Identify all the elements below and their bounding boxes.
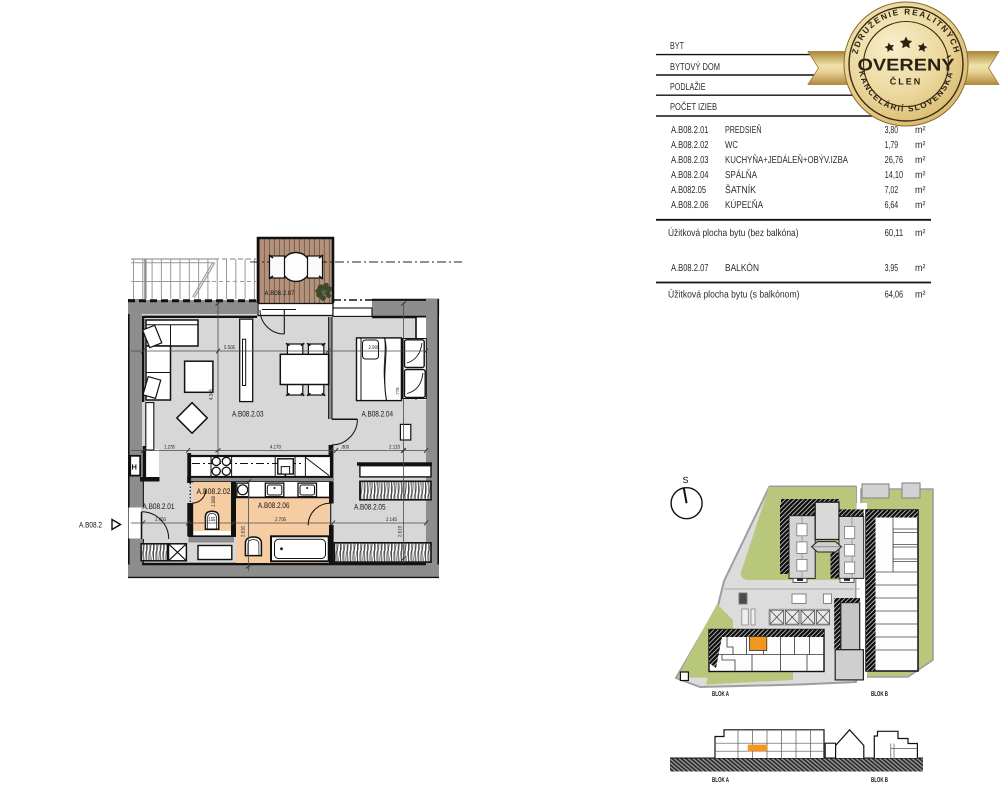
svg-text:1.155: 1.155 [205, 517, 216, 523]
svg-text:1.235: 1.235 [164, 444, 175, 450]
svg-text:A.B08.2.02: A.B08.2.02 [197, 487, 231, 496]
svg-text:m²: m² [915, 125, 926, 136]
svg-text:KÚPEĽŇA: KÚPEĽŇA [725, 199, 763, 211]
svg-text:1.588: 1.588 [211, 496, 217, 507]
svg-text:2.619: 2.619 [398, 526, 404, 537]
svg-text:BYTOVÝ DOM: BYTOVÝ DOM [670, 61, 720, 73]
svg-text:BLOK B: BLOK B [871, 777, 888, 784]
svg-text:4.170: 4.170 [270, 444, 281, 450]
svg-text:A.B08.2.05: A.B08.2.05 [354, 503, 386, 512]
svg-text:H: H [132, 463, 137, 472]
svg-text:1.450: 1.450 [155, 517, 166, 523]
svg-text:m²: m² [915, 140, 926, 151]
svg-text:A.B082.05: A.B082.05 [671, 185, 706, 196]
svg-text:m²: m² [915, 290, 926, 301]
svg-text:WC: WC [725, 140, 738, 151]
svg-text:26,76: 26,76 [885, 155, 904, 166]
svg-text:PREDSIEŇ: PREDSIEŇ [725, 124, 762, 136]
svg-text:6,64: 6,64 [885, 200, 899, 211]
svg-text:7,02: 7,02 [885, 185, 899, 196]
svg-text:S: S [683, 475, 689, 485]
svg-text:3,95: 3,95 [885, 263, 899, 274]
svg-text:A.B08.2.07: A.B08.2.07 [265, 290, 295, 297]
svg-text:A.B08.2.07: A.B08.2.07 [671, 263, 709, 274]
svg-text:A.B08.2.06: A.B08.2.06 [671, 200, 709, 211]
svg-text:A.B08.2: A.B08.2 [79, 521, 102, 530]
svg-text:A.B08.2.04: A.B08.2.04 [362, 410, 394, 419]
svg-text:BLOK A: BLOK A [712, 777, 729, 784]
svg-text:14,10: 14,10 [885, 170, 904, 181]
svg-text:2.610: 2.610 [241, 526, 247, 537]
svg-text:4.345: 4.345 [209, 389, 215, 400]
svg-text:2.705: 2.705 [275, 517, 286, 523]
svg-text:2.115: 2.115 [389, 444, 400, 450]
svg-text:A.B08.2.03: A.B08.2.03 [671, 155, 709, 166]
svg-text:3,80: 3,80 [885, 125, 899, 136]
svg-text:A.B08.2.03: A.B08.2.03 [232, 410, 264, 419]
svg-text:A.B08.2.01: A.B08.2.01 [143, 502, 175, 511]
svg-text:m²: m² [915, 200, 926, 211]
svg-text:BYT: BYT [670, 41, 684, 52]
svg-text:A.B08.2.01: A.B08.2.01 [671, 125, 709, 136]
svg-text:BLOK A: BLOK A [712, 691, 729, 698]
svg-text:A.B08.2.06: A.B08.2.06 [258, 501, 290, 510]
svg-text:m²: m² [915, 170, 926, 181]
svg-text:2.905: 2.905 [369, 345, 380, 351]
svg-text:.800: .800 [341, 444, 349, 450]
svg-text:ŠATNÍK: ŠATNÍK [725, 184, 756, 196]
svg-text:60,11: 60,11 [885, 228, 904, 239]
svg-text:SPÁLŇA: SPÁLŇA [725, 169, 757, 181]
svg-text:PODLAŽIE: PODLAŽIE [670, 81, 706, 93]
svg-text:5.505: 5.505 [224, 345, 235, 351]
svg-text:POČET IZIEB: POČET IZIEB [670, 101, 717, 113]
svg-text:.778: .778 [395, 387, 400, 396]
svg-text:1,79: 1,79 [885, 140, 899, 151]
svg-text:BALKÓN: BALKÓN [725, 262, 759, 274]
svg-text:A.B08.2.02: A.B08.2.02 [671, 140, 709, 151]
svg-text:Úžitková plocha bytu (s balkón: Úžitková plocha bytu (s balkónom) [668, 289, 800, 301]
svg-text:ČLEN: ČLEN [890, 76, 923, 87]
svg-text:A.B08.2.04: A.B08.2.04 [671, 170, 709, 181]
svg-text:m²: m² [915, 185, 926, 196]
svg-text:64,06: 64,06 [885, 290, 904, 301]
svg-text:m²: m² [915, 155, 926, 166]
svg-text:BLOK B: BLOK B [871, 691, 888, 698]
svg-text:2.145: 2.145 [386, 517, 397, 523]
svg-text:m²: m² [915, 228, 926, 239]
svg-text:KUCHYŇA+JEDÁLEŇ+OBÝV.IZBA: KUCHYŇA+JEDÁLEŇ+OBÝV.IZBA [725, 154, 848, 166]
svg-text:m²: m² [915, 263, 926, 274]
svg-text:OVERENÝ: OVERENÝ [858, 55, 956, 75]
svg-text:Úžitková plocha bytu (bez balk: Úžitková plocha bytu (bez balkóna) [668, 227, 799, 239]
